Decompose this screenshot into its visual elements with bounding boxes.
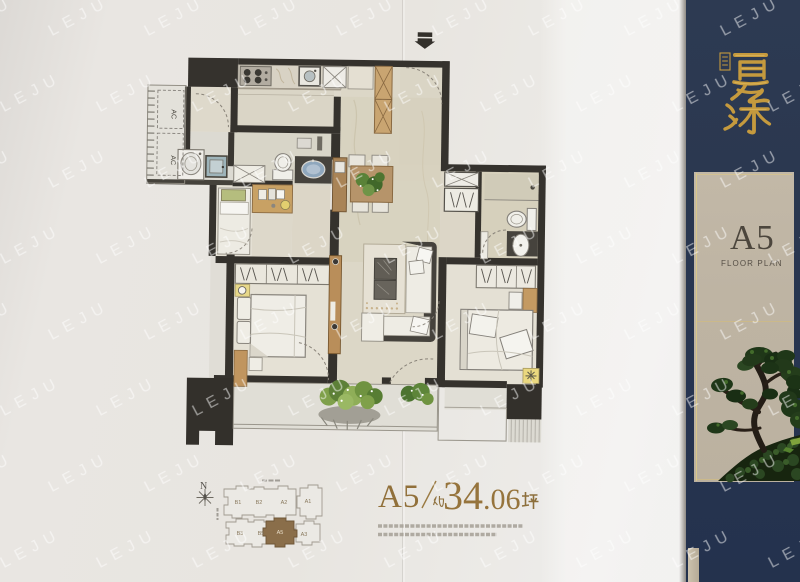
- svg-text:AC: AC: [170, 109, 177, 119]
- svg-text:A5: A5: [277, 530, 284, 536]
- svg-text:N: N: [200, 481, 207, 492]
- svg-text:A2: A2: [281, 500, 288, 506]
- svg-text:A5: A5: [378, 479, 420, 515]
- svg-text:B5: B5: [258, 531, 265, 537]
- svg-text:A3: A3: [301, 532, 308, 538]
- svg-text:B2: B2: [256, 500, 263, 506]
- svg-text:B1: B1: [235, 500, 242, 506]
- svg-text:.06: .06: [483, 483, 521, 516]
- svg-text:A1: A1: [305, 499, 312, 505]
